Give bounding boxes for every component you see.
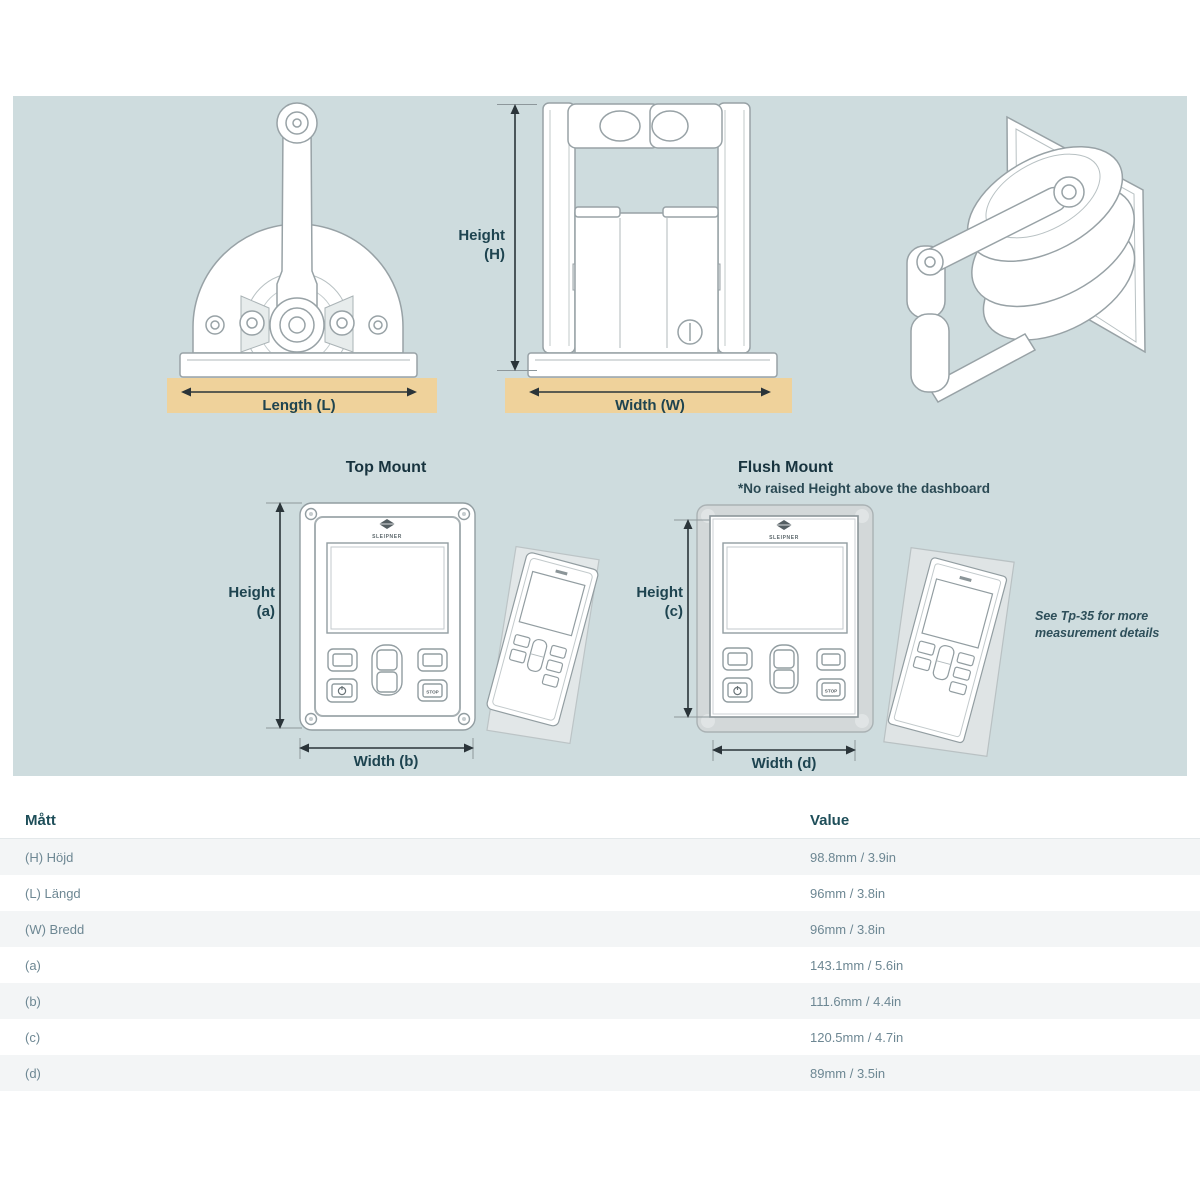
- width-d-label: Width (d): [694, 754, 874, 773]
- column-header-value: Value: [810, 812, 849, 829]
- table-row: (L) Längd 96mm / 3.8in: [0, 875, 1200, 911]
- top-mount-panel-drawing: SLEIPNER: [300, 503, 475, 730]
- table-row: (a) 143.1mm / 5.6in: [0, 947, 1200, 983]
- table-row: (b) 111.6mm / 4.4in: [0, 983, 1200, 1019]
- column-header-matt: Mått: [25, 812, 56, 829]
- height-c-label: Height (c): [623, 583, 683, 621]
- width-W-label: Width (W): [560, 396, 740, 415]
- front-view-drawing: [180, 103, 417, 377]
- length-L-label: Length (L): [209, 396, 389, 415]
- screen: [723, 543, 847, 633]
- height-H-label: Height (H): [445, 226, 505, 264]
- dimension-diagram-panel: SLEIPNER: [13, 96, 1187, 776]
- diagram-artwork: SLEIPNER: [13, 96, 1187, 776]
- flush-mount-title: Flush Mount: [738, 459, 833, 477]
- side-view-drawing: [528, 103, 777, 377]
- table-row: (W) Bredd 96mm / 3.8in: [0, 911, 1200, 947]
- top-mount-title: Top Mount: [296, 459, 476, 477]
- brand-text: SLEIPNER: [372, 534, 402, 540]
- table-row: (H) Höjd 98.8mm / 3.9in: [0, 839, 1200, 875]
- table-row: (c) 120.5mm / 4.7in: [0, 1019, 1200, 1055]
- flush-mount-panel-drawing: SLEIPNER: [697, 505, 873, 732]
- brand-text: SLEIPNER: [769, 535, 799, 541]
- height-a-label: Height (a): [215, 583, 275, 621]
- page: SLEIPNER: [0, 0, 1200, 1200]
- button: [817, 649, 845, 670]
- table-header-row: Mått Value: [0, 802, 1200, 839]
- flush-mount-subtitle: *No raised Height above the dashboard: [738, 481, 990, 496]
- table-row: (d) 89mm / 3.5in: [0, 1055, 1200, 1091]
- spec-table: Mått Value (H) Höjd 98.8mm / 3.9in (L) L…: [0, 802, 1200, 1091]
- flush-mount-perspective-drawing: [884, 548, 1014, 757]
- perspective-3d-drawing: [907, 117, 1154, 402]
- width-b-label: Width (b): [296, 752, 476, 771]
- screen: [327, 543, 448, 633]
- top-mount-perspective-drawing: [486, 547, 599, 744]
- stop-button-label: STOP: [825, 689, 837, 694]
- measurement-note: See Tp-35 for more measurement details: [1035, 608, 1185, 642]
- stop-button-label: STOP: [426, 690, 438, 695]
